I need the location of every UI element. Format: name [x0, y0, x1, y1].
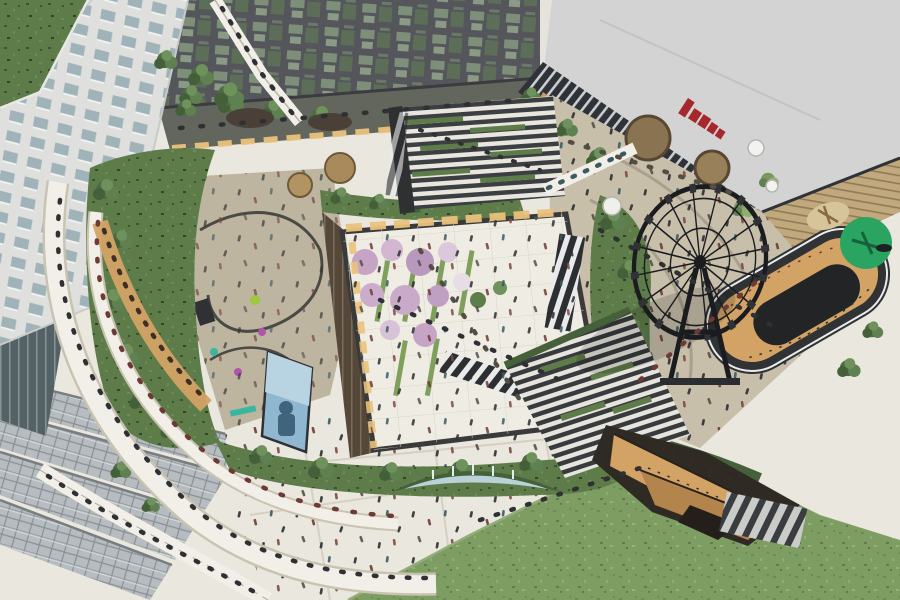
umbrella	[766, 180, 778, 192]
amphitheater-steps: Planted amphitheater steps	[386, 96, 565, 214]
umbrella	[748, 140, 764, 156]
led-screen	[262, 352, 312, 452]
rendering-canvas: Glazed canopy roofs Ground-level plaza S…	[0, 0, 900, 600]
pavilion	[603, 197, 621, 215]
aerial-render: Glazed canopy roofs Ground-level plaza S…	[0, 0, 900, 600]
